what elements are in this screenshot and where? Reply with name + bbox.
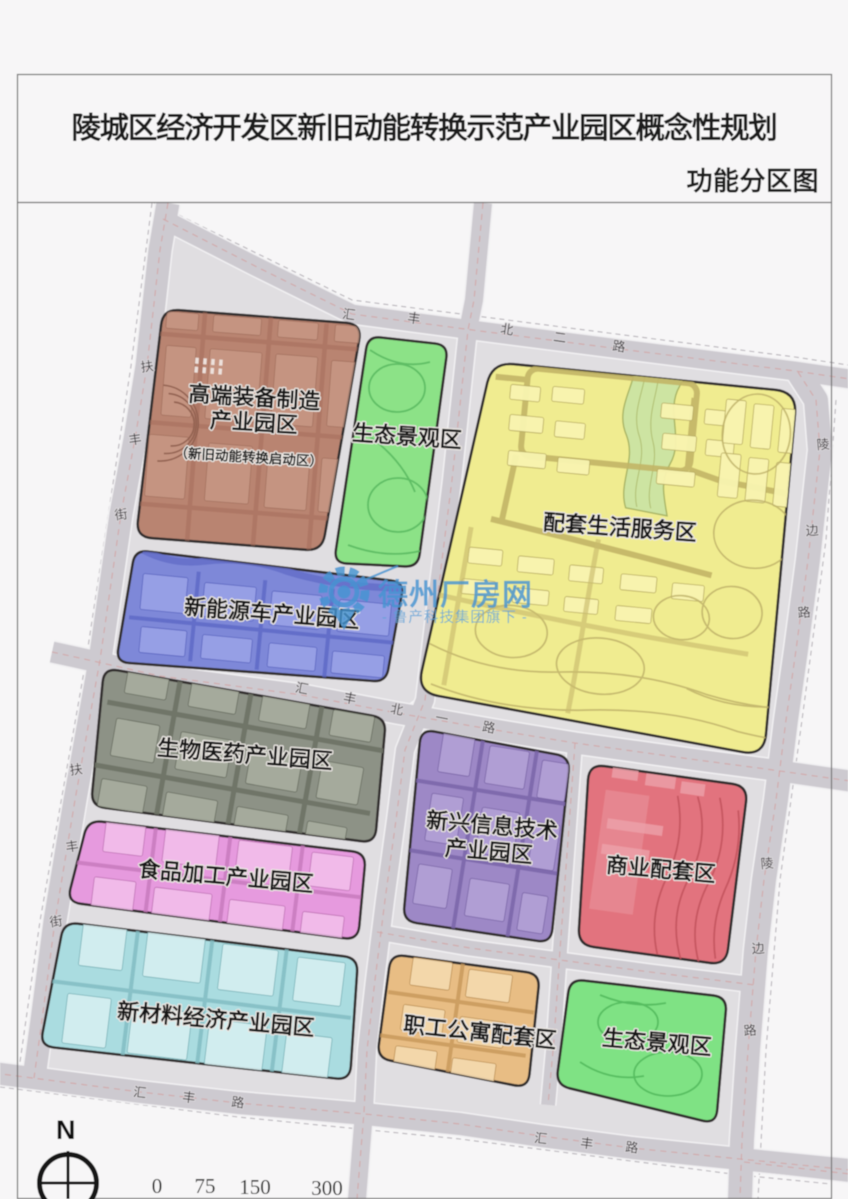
svg-text:德州厂房网: 德州厂房网	[378, 579, 533, 612]
svg-text:街: 街	[49, 913, 64, 930]
svg-text:边: 边	[751, 940, 765, 956]
svg-text:路: 路	[743, 1022, 757, 1038]
svg-text:路: 路	[625, 1139, 640, 1155]
svg-text:边: 边	[805, 522, 819, 538]
svg-text:0: 0	[152, 1174, 163, 1198]
svg-text:功能分区图: 功能分区图	[686, 166, 819, 196]
svg-text:陵: 陵	[760, 855, 774, 871]
svg-text:街: 街	[114, 506, 129, 523]
svg-text:陵城区经济开发区新旧动能转换示范产业园区概念性规划: 陵城区经济开发区新旧动能转换示范产业园区概念性规划	[71, 111, 776, 145]
svg-text:丰: 丰	[406, 310, 421, 327]
svg-text:150: 150	[239, 1175, 271, 1199]
svg-text:北: 北	[499, 321, 514, 338]
svg-text:75: 75	[195, 1174, 216, 1198]
svg-text:路: 路	[797, 604, 811, 620]
svg-text:汇: 汇	[341, 306, 356, 323]
svg-text:扶: 扶	[140, 358, 155, 375]
svg-text:路: 路	[231, 1094, 246, 1110]
svg-text:路: 路	[611, 338, 626, 355]
svg-text:丰: 丰	[128, 431, 143, 448]
svg-text:二: 二	[552, 329, 567, 346]
svg-text:N: N	[56, 1115, 76, 1145]
svg-text:汇: 汇	[534, 1130, 549, 1146]
svg-text:300: 300	[311, 1176, 343, 1199]
svg-text:- 鲁产科技集团旗下 -: - 鲁产科技集团旗下 -	[382, 609, 528, 626]
svg-text:汇: 汇	[133, 1084, 148, 1100]
svg-text:丰: 丰	[65, 838, 80, 855]
svg-text:丰: 丰	[580, 1135, 595, 1151]
svg-text:陵: 陵	[816, 436, 830, 452]
svg-text:扶: 扶	[69, 761, 84, 778]
svg-text:丰: 丰	[182, 1089, 197, 1105]
